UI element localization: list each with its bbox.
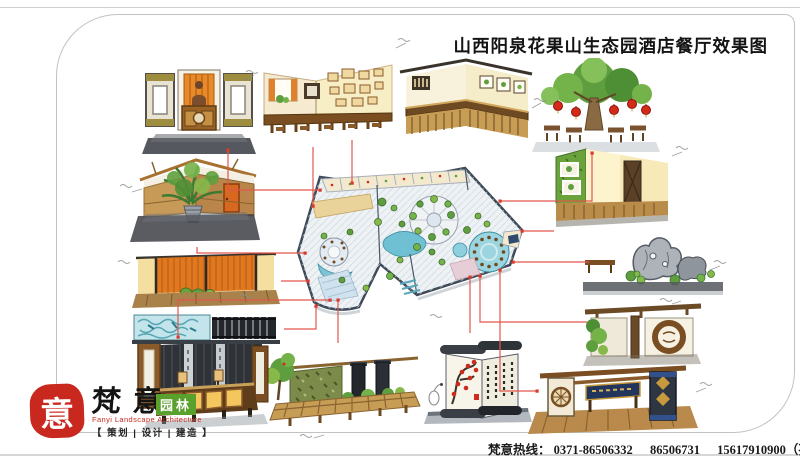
hotline: 梵意热线： 0371-86506332 86506731 15617910900… — [488, 439, 800, 458]
brand-char-1: 梵 — [91, 384, 122, 418]
phone-number-3: 15617910900（孙） — [717, 443, 800, 457]
phone-number-1: 0371-86506332 — [554, 443, 633, 457]
hotline-label: 梵意热线： — [488, 443, 551, 457]
brand-services: 【 策划 | 设计 | 建造 】 — [92, 425, 213, 439]
brand-type-badge: 园林 — [156, 394, 196, 415]
brand-english-name: Fanyi Landscape Architecture — [92, 415, 202, 424]
company-logo: 意 梵意 园林 Fanyi Landscape Architecture 【 策… — [28, 380, 238, 444]
presentation-board: 山西阳泉花果山生态园酒店餐厅效果图 — [0, 0, 800, 464]
brand-calligraphy: 梵意 — [91, 378, 164, 420]
phone-number-2: 86506731 — [650, 443, 700, 457]
seal-character: 意 — [40, 386, 75, 436]
seal-stamp-icon: 意 — [29, 383, 85, 439]
